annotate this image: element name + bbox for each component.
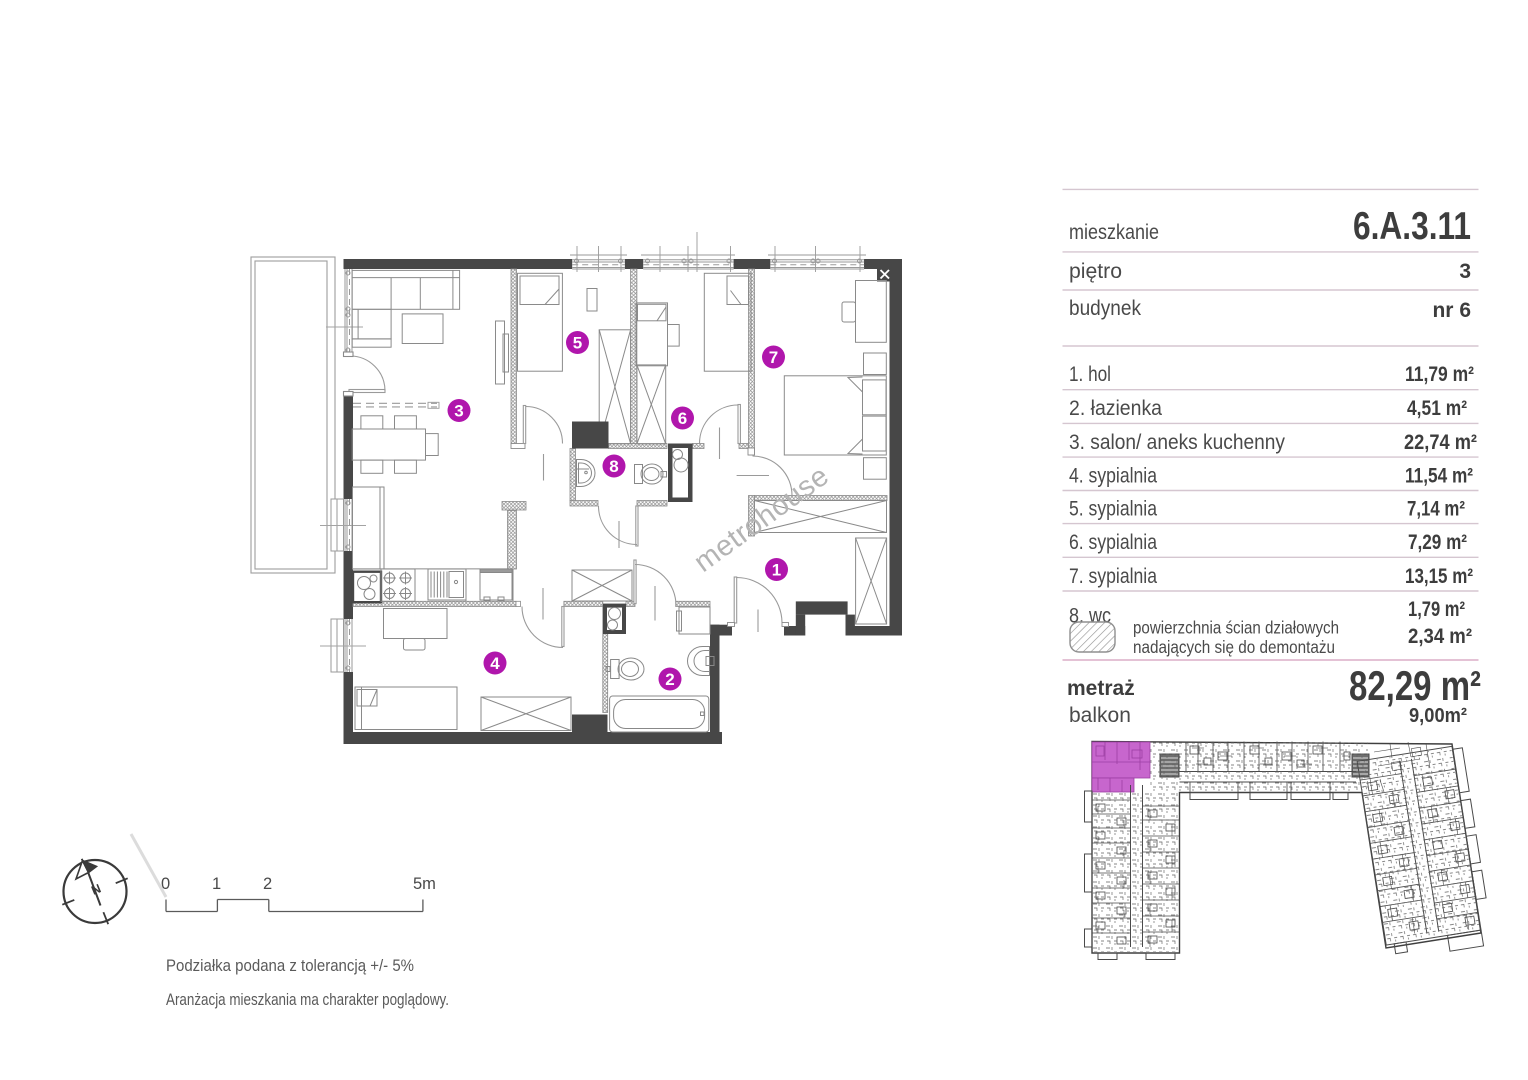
svg-text:6: 6 bbox=[678, 409, 687, 428]
svg-text:balkon: balkon bbox=[1069, 704, 1131, 727]
svg-text:nr 6: nr 6 bbox=[1432, 299, 1471, 322]
svg-text:13,15 m²: 13,15 m² bbox=[1405, 565, 1473, 588]
svg-text:6.A.3.11: 6.A.3.11 bbox=[1353, 205, 1471, 248]
svg-text:metraż: metraż bbox=[1067, 677, 1135, 700]
svg-text:nadających się do demontażu: nadających się do demontażu bbox=[1133, 637, 1335, 657]
svg-text:1: 1 bbox=[772, 561, 781, 580]
svg-text:4,51 m²: 4,51 m² bbox=[1407, 397, 1467, 420]
svg-text:11,79 m²: 11,79 m² bbox=[1405, 363, 1474, 386]
svg-text:6. sypialnia: 6. sypialnia bbox=[1069, 531, 1157, 554]
svg-text:0: 0 bbox=[161, 875, 170, 893]
svg-text:5: 5 bbox=[573, 334, 582, 353]
svg-text:2,34 m²: 2,34 m² bbox=[1408, 625, 1472, 648]
svg-text:11,54 m²: 11,54 m² bbox=[1405, 465, 1473, 488]
svg-text:5. sypialnia: 5. sypialnia bbox=[1069, 498, 1157, 521]
svg-text:3. salon/ aneks kuchenny: 3. salon/ aneks kuchenny bbox=[1069, 431, 1285, 454]
svg-text:8: 8 bbox=[609, 457, 618, 476]
svg-text:4. sypialnia: 4. sypialnia bbox=[1069, 465, 1157, 488]
svg-text:7. sypialnia: 7. sypialnia bbox=[1069, 565, 1157, 588]
svg-text:Aranżacja mieszkania ma charak: Aranżacja mieszkania ma charakter pogląd… bbox=[166, 990, 449, 1009]
svg-text:7,29 m²: 7,29 m² bbox=[1408, 531, 1467, 554]
svg-text:1. hol: 1. hol bbox=[1069, 363, 1111, 386]
svg-text:22,74 m²: 22,74 m² bbox=[1404, 431, 1477, 454]
svg-text:7: 7 bbox=[769, 348, 778, 367]
svg-text:3: 3 bbox=[454, 402, 463, 421]
svg-text:budynek: budynek bbox=[1069, 297, 1141, 320]
svg-text:2. łazienka: 2. łazienka bbox=[1069, 397, 1162, 420]
svg-text:4: 4 bbox=[490, 654, 500, 673]
svg-text:3: 3 bbox=[1459, 260, 1471, 283]
svg-text:Podziałka podana z tolerancją: Podziałka podana z tolerancją +/- 5% bbox=[166, 956, 414, 975]
svg-text:2: 2 bbox=[665, 670, 674, 689]
svg-text:7,14 m²: 7,14 m² bbox=[1407, 498, 1465, 521]
svg-text:9,00m²: 9,00m² bbox=[1409, 705, 1467, 727]
svg-text:1,79 m²: 1,79 m² bbox=[1408, 598, 1465, 621]
svg-text:piętro: piętro bbox=[1069, 260, 1122, 283]
svg-text:mieszkanie: mieszkanie bbox=[1069, 221, 1159, 244]
svg-text:powierzchnia ścian działowych: powierzchnia ścian działowych bbox=[1133, 618, 1339, 638]
svg-text:1: 1 bbox=[212, 875, 221, 893]
svg-text:2: 2 bbox=[263, 875, 272, 893]
svg-text:82,29 m²: 82,29 m² bbox=[1349, 662, 1481, 709]
svg-text:5m: 5m bbox=[413, 875, 436, 893]
